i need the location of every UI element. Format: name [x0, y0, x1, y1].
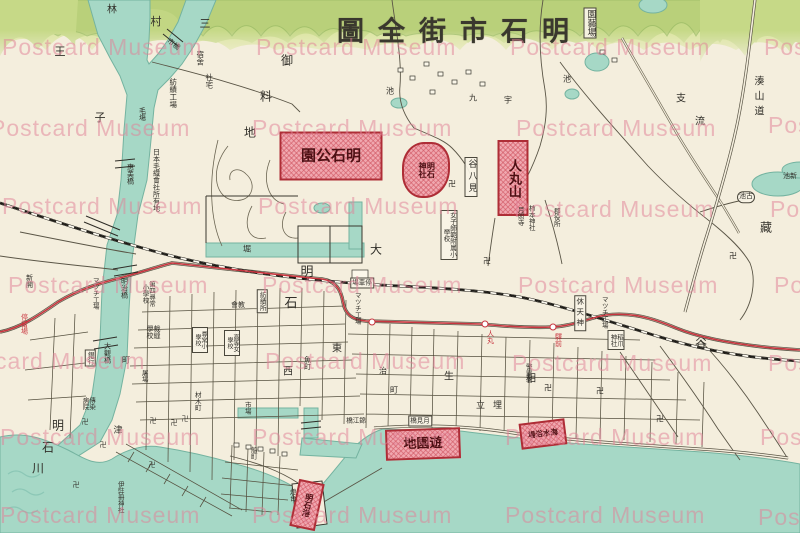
castle-moat: [206, 243, 364, 257]
tram-stop-marker: [482, 321, 489, 328]
map-label: 林: [107, 6, 117, 17]
map-label: 湊山道: [752, 76, 762, 121]
map-label: 高等女學校: [224, 330, 240, 356]
red-site-label: 人丸山: [506, 159, 520, 198]
watermark-text: Postcard Museum: [510, 34, 710, 61]
map-label: 料: [260, 91, 272, 104]
map-label: 市場: [244, 402, 251, 415]
temple-manji-icon: 卍: [483, 258, 491, 267]
watermark-text: Postcard Museum: [262, 272, 462, 299]
map-label: 立埋: [476, 402, 510, 412]
watermark-text: Postcard Museum: [774, 272, 800, 299]
map-label: 谷: [695, 338, 707, 351]
temple-manji-icon: 卍: [544, 385, 552, 394]
map-label: 會教: [231, 302, 245, 310]
temple-manji-icon: 卍: [73, 482, 80, 490]
watermark-text: Postcard Museum: [516, 115, 716, 142]
map-label: 池: [563, 76, 571, 85]
temple-manji-icon: 卍: [448, 181, 456, 190]
watermark-text: Postcard Museum: [760, 424, 800, 451]
map-label: 三: [200, 18, 211, 30]
map-label: 燈台: [289, 489, 296, 502]
watermark-text: Postcard Museum: [252, 115, 452, 142]
watermark-text: Postcard Museum: [252, 424, 452, 451]
map-label: 材木町: [194, 391, 201, 411]
watermark-text: Postcard Museum: [258, 193, 458, 220]
watermark-text: Postcard Museum: [0, 502, 200, 529]
watermark-text: Postcard Museum: [265, 348, 465, 375]
map-label: 池古: [737, 191, 755, 203]
postcard: 圖全街市石明園藝場林村三市橋宿舍社宅紡績工場毛塲王子御料地九宇池池湊山道支流藏谷…: [0, 0, 800, 533]
map-label: 休天神: [574, 295, 586, 331]
map-label: 池新: [783, 173, 797, 181]
temple-manji-icon: 卍: [182, 416, 189, 424]
map-label: 川: [32, 463, 44, 476]
watermark-text: Postcard Museum: [0, 348, 145, 375]
watermark-text: Postcard Museum: [768, 112, 800, 139]
watermark-text: Postcard Museum: [8, 272, 208, 299]
red-site-label: 明石神社: [418, 159, 435, 181]
pond: [391, 98, 407, 108]
tram-stop-label: 驛前: [555, 333, 562, 347]
temple-manji-icon: 卍: [596, 388, 604, 397]
watermark-text: Postcard Museum: [518, 272, 718, 299]
red-site-label: 園公石明: [301, 148, 361, 164]
watermark-text: Postcard Museum: [2, 193, 202, 220]
watermark-text: Postcard Museum: [514, 196, 714, 223]
map-label: マツチ工場: [601, 296, 608, 329]
pond: [639, 0, 667, 13]
pond: [565, 89, 579, 99]
map-label: 九: [469, 95, 477, 104]
map-label: 石: [284, 297, 297, 311]
map-label: 社宅: [205, 74, 213, 89]
map-label: 裁縫學校: [146, 324, 160, 340]
map-label: 宇: [504, 97, 512, 106]
map-label: 村: [151, 16, 162, 28]
watermark-text: Postcard Museum: [0, 115, 190, 142]
map-label: 紡績工場: [169, 78, 177, 108]
watermark-text: Postcard Museum: [768, 350, 800, 377]
watermark-text: Postcard Museum: [512, 350, 712, 377]
map-label: 稻爪神社: [608, 330, 625, 350]
temple-manji-icon: 卍: [729, 253, 737, 262]
map-label: 池: [386, 88, 394, 97]
map-label: 谷八見: [465, 157, 478, 197]
watermark-text: Postcard Museum: [764, 34, 800, 61]
map-label: 尋常小學校: [192, 327, 208, 353]
map-label: 町: [390, 387, 398, 396]
tram-stop-label: 人丸: [487, 330, 494, 344]
watermark-text: Postcard Museum: [0, 424, 200, 451]
watermark-text: Postcard Museum: [770, 196, 800, 223]
map-label: 傳染病院: [82, 395, 95, 411]
watermark-text: Postcard Museum: [505, 502, 705, 529]
temple-manji-icon: 卍: [149, 462, 156, 470]
watermark-text: Postcard Museum: [2, 34, 202, 61]
watermark-text: Postcard Museum: [256, 34, 456, 61]
map-label: 惠美橋: [127, 164, 134, 185]
map-label: 支: [676, 95, 686, 106]
map-label: 藏: [760, 222, 772, 235]
tram-stop-marker: [369, 319, 376, 326]
tram-stop-label: 停留場: [21, 314, 28, 335]
watermark-text: Postcard Museum: [505, 424, 705, 451]
watermark-text: Postcard Museum: [252, 502, 452, 529]
map-label: 大: [370, 244, 382, 257]
tram-stop-marker: [550, 324, 557, 331]
watermark-text: Postcard Museum: [758, 504, 800, 531]
map-label: 堀: [243, 246, 251, 255]
